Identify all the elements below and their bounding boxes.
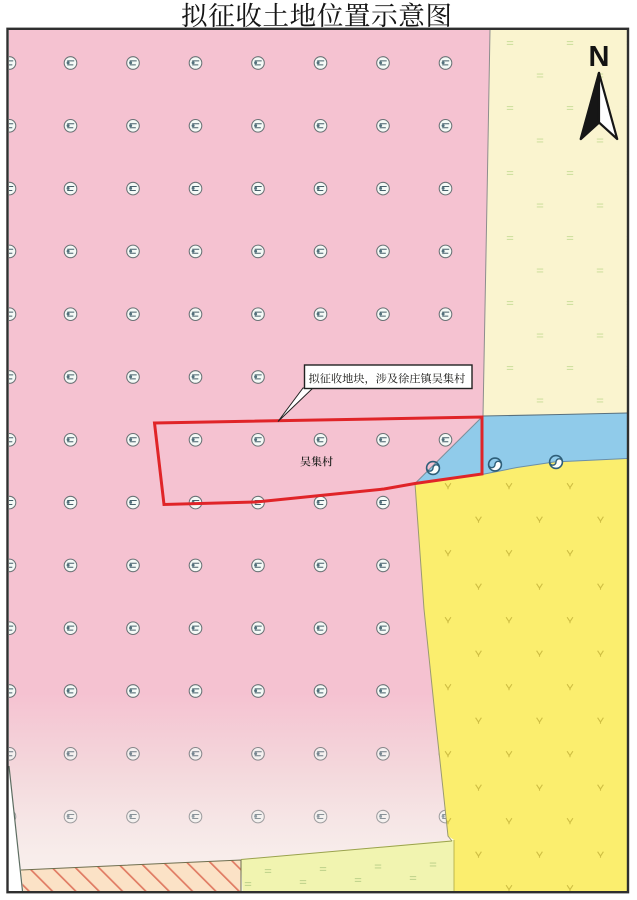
svg-text:N: N (589, 41, 610, 73)
